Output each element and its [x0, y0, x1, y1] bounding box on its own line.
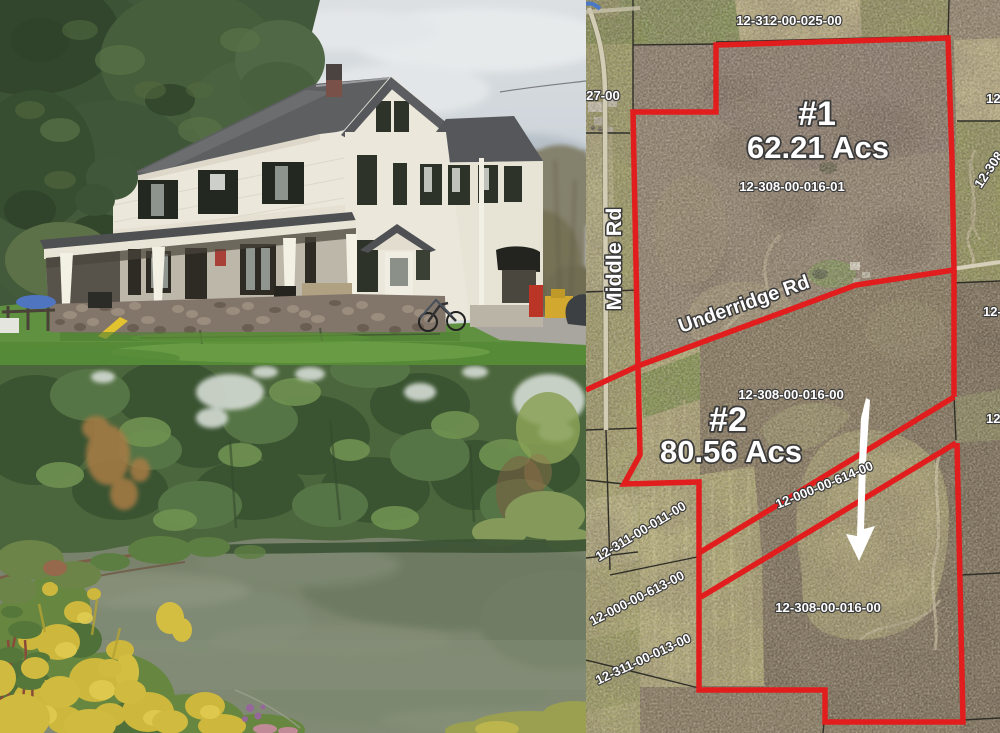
- svg-text:12-308-00-016-01: 12-308-00-016-01: [739, 179, 845, 194]
- svg-text:80.56 Acs: 80.56 Acs: [660, 434, 802, 469]
- svg-text:12-312-00-025-00: 12-312-00-025-00: [736, 13, 842, 28]
- svg-text:12-308-00-016-00: 12-308-00-016-00: [775, 600, 881, 615]
- svg-text:12-3: 12-3: [986, 411, 1000, 426]
- svg-text:12-31: 12-31: [986, 91, 1000, 106]
- svg-text:12-308-00-016-00: 12-308-00-016-00: [738, 387, 844, 402]
- svg-text:Middle Rd: Middle Rd: [602, 208, 626, 311]
- svg-text:62.21 Acs: 62.21 Acs: [747, 130, 889, 165]
- svg-text:#1: #1: [798, 95, 836, 133]
- svg-text:12-3: 12-3: [983, 304, 1000, 319]
- svg-text:27-00: 27-00: [586, 88, 620, 103]
